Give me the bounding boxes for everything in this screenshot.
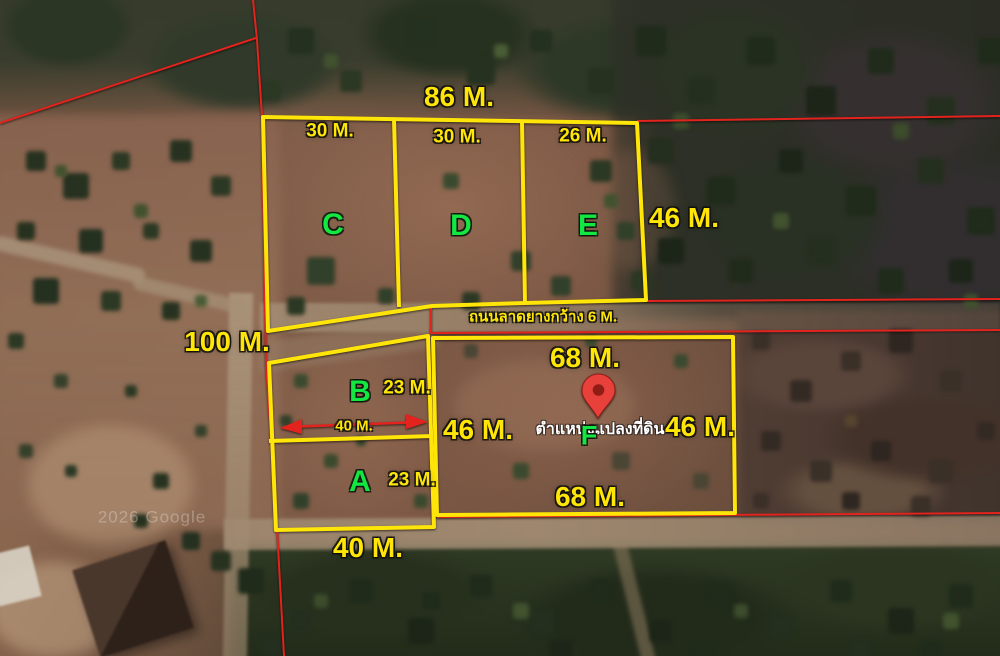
dim-plot-f-east: 46 M. xyxy=(665,413,735,441)
dim-plot-f-top: 68 M. xyxy=(550,344,620,372)
dim-plot-d-width: 30 M. xyxy=(433,128,481,147)
dim-plot-e-depth: 46 M. xyxy=(649,204,719,232)
cadastral-line-northeast xyxy=(637,116,1000,121)
dim-plot-e-width: 26 M. xyxy=(559,127,607,146)
dim-bottom-width: 40 M. xyxy=(333,534,403,562)
dim-plot-f-west: 46 M. xyxy=(443,416,513,444)
plot-letter-e: E xyxy=(578,211,598,241)
arrow-head-left xyxy=(280,419,302,434)
dim-plot-c-width: 30 M. xyxy=(306,122,354,141)
dim-top-width: 86 M. xyxy=(424,83,494,111)
survey-overlay xyxy=(0,0,1000,656)
plot-letter-f: F xyxy=(581,423,598,450)
pin-hole xyxy=(593,384,605,396)
divider-d-e xyxy=(522,121,525,304)
dim-plot-b-frontage: 40 M. xyxy=(335,419,373,434)
cadastral-line-diagonal xyxy=(0,38,256,123)
dim-plot-b-width: 23 M. xyxy=(383,379,431,398)
dim-west-length: 100 M. xyxy=(184,328,270,356)
location-pin xyxy=(582,374,615,418)
dim-plot-f-bottom: 68 M. xyxy=(555,483,625,511)
divider-b-a xyxy=(269,436,433,441)
arrow-head-right xyxy=(406,414,428,429)
plot-letter-d: D xyxy=(450,211,472,241)
plot-letter-a: A xyxy=(349,467,371,497)
cadastral-line-road-north xyxy=(646,299,1000,301)
pin-caption: ตำแหน่งแปลงที่ดิน xyxy=(536,422,665,438)
plot-letter-b: B xyxy=(349,377,371,407)
pin-body xyxy=(582,374,615,418)
plot-letter-c: C xyxy=(322,210,344,240)
dim-plot-a-width: 23 M. xyxy=(388,471,436,490)
divider-c-d xyxy=(394,119,399,307)
cadastral-line-road-south xyxy=(431,330,1000,333)
road-name-label: ถนนลาดยางกว้าง 6 M. xyxy=(469,310,617,325)
annotated-satellite-map: 2026 Google 86 M. xyxy=(0,0,1000,656)
